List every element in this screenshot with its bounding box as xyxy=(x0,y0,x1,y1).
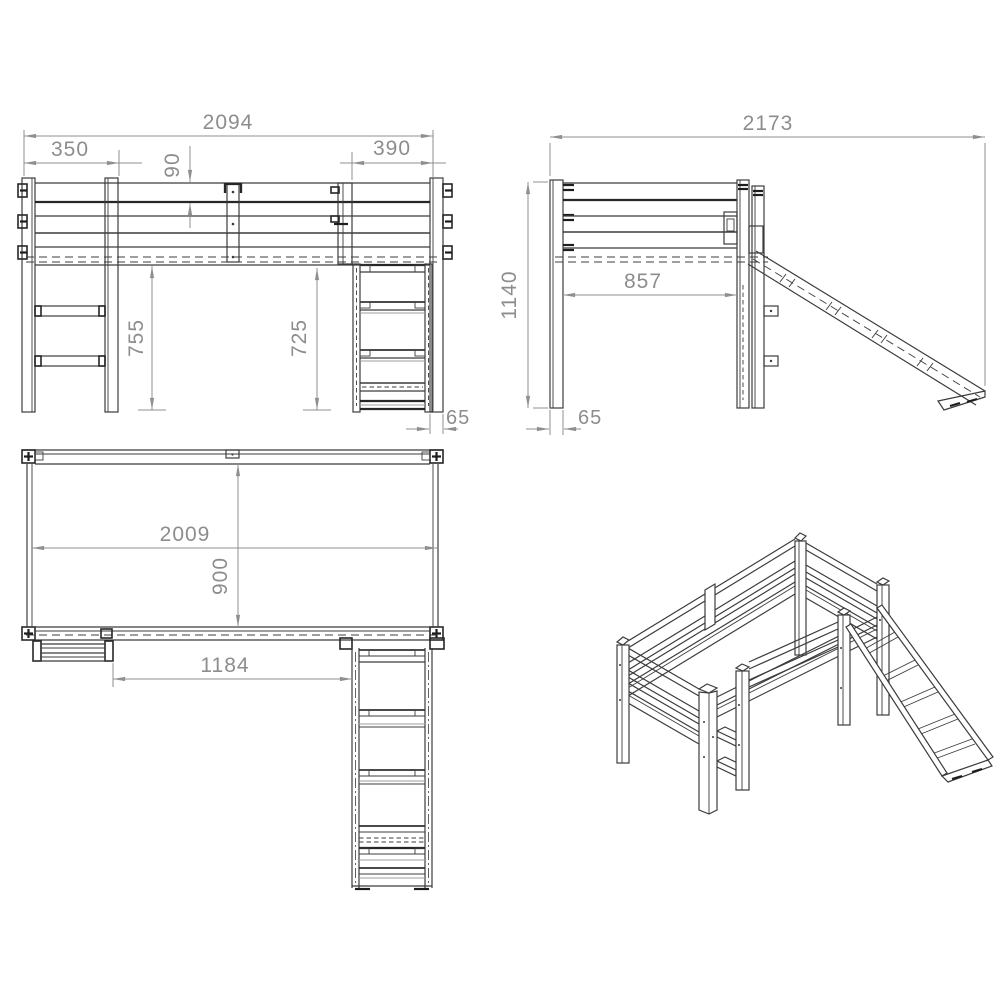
dim-overall-height: 1140 xyxy=(498,270,521,319)
technical-drawing: 2094 350 390 90 755 725 65 xyxy=(0,0,1000,1000)
dim-slide-width: 390 xyxy=(373,137,411,160)
drawing-canvas: 2094 350 390 90 755 725 65 xyxy=(0,0,1000,1000)
dim-board-height: 90 xyxy=(161,152,184,177)
dim-clear-inner-depth: 857 xyxy=(624,270,662,293)
side-elevation-dimensions: 2173 1140 857 65 xyxy=(498,112,985,435)
dim-inner-length: 2009 xyxy=(160,523,211,546)
dim-underbed-height-right: 725 xyxy=(288,319,311,357)
dim-underbed-height-left: 755 xyxy=(125,319,148,357)
dim-post-width-side: 65 xyxy=(578,407,602,429)
front-elevation-view xyxy=(18,178,452,412)
dim-post-depth-front: 65 xyxy=(446,407,470,429)
dim-overall-depth: 2173 xyxy=(743,112,794,135)
dim-slide-offset: 1184 xyxy=(200,654,249,677)
dim-inner-width: 900 xyxy=(209,557,232,595)
dim-ladder-width: 350 xyxy=(51,138,89,161)
isometric-view xyxy=(617,533,993,814)
dim-overall-width: 2094 xyxy=(203,111,254,134)
